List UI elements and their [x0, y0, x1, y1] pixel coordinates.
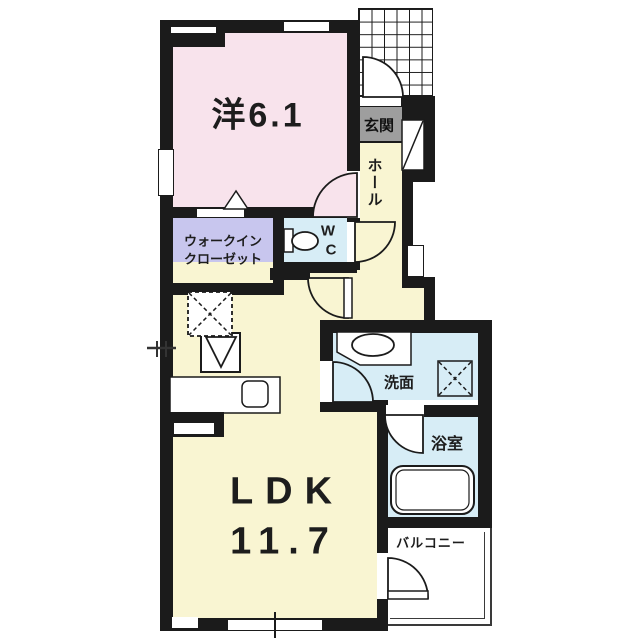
- bedroom-door-marker: [224, 191, 248, 209]
- door-arc-bedroom: [313, 173, 357, 217]
- bathroom-label: 浴室: [431, 430, 463, 454]
- ldk-size-label: 11.7: [230, 521, 338, 564]
- door-arc-hall-ldk: [308, 278, 348, 318]
- balcony-label: バルコニー: [396, 533, 466, 552]
- walk-in-closet-label-line2: クローゼット: [184, 249, 262, 268]
- door-arc-entrance: [363, 57, 403, 97]
- door-leaf-balcony: [388, 591, 428, 599]
- walk-in-closet-label-line1: ウォークイン: [184, 231, 262, 250]
- door-arc-washroom: [333, 362, 373, 402]
- washbasin-bowl: [352, 334, 394, 356]
- door-arc-wc: [355, 222, 395, 262]
- kitchen-sink: [242, 381, 268, 407]
- ldk-label: LDK: [230, 471, 344, 514]
- toilet-bowl: [292, 232, 318, 250]
- bathtub: [391, 466, 474, 514]
- entrance-label: 玄関: [364, 115, 394, 136]
- hall-label: ホール: [364, 158, 385, 209]
- floor-plan: 洋6.1 ウォークイン クローゼット W C ホール 玄関 LDK 11.7 洗…: [0, 0, 640, 640]
- door-leaf-hall-ldk: [344, 278, 352, 318]
- wc-label-w: W: [321, 223, 335, 240]
- washroom-label: 洗面: [384, 372, 414, 393]
- door-arc-bathroom: [385, 415, 423, 453]
- kitchen-base-inset: [174, 423, 214, 434]
- wc-label-c: C: [326, 242, 337, 259]
- bedroom-label: 洋6.1: [211, 88, 304, 137]
